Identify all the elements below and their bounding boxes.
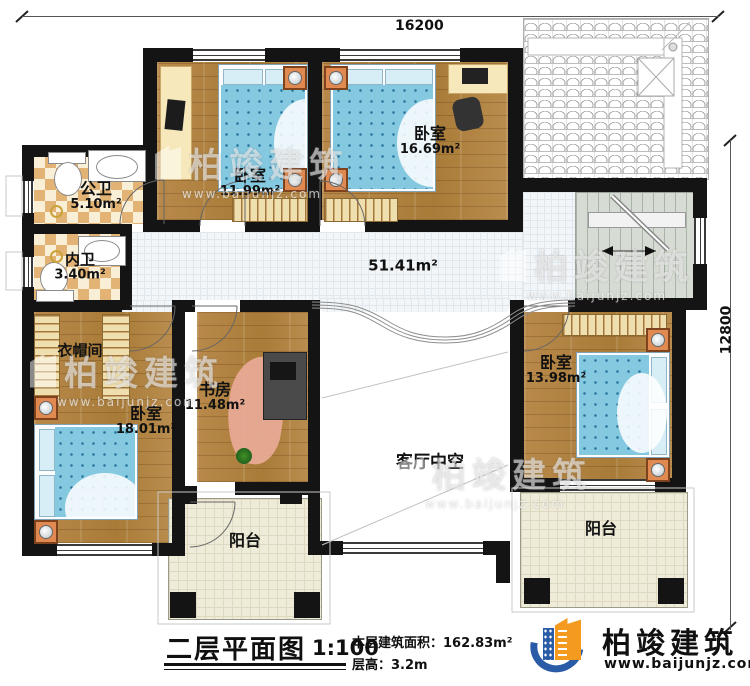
staircase bbox=[575, 192, 695, 300]
wall-segment bbox=[510, 478, 560, 492]
room-label-bedroom-top-left: 卧室 11.99m² bbox=[220, 167, 280, 199]
wall-segment bbox=[265, 48, 340, 62]
plant bbox=[236, 448, 252, 464]
wall-segment bbox=[185, 300, 195, 312]
wall-segment bbox=[22, 543, 57, 556]
wall-segment bbox=[672, 300, 686, 492]
wardrobe bbox=[324, 198, 398, 222]
wardrobe bbox=[34, 314, 60, 400]
wall-segment bbox=[510, 300, 524, 312]
room-label-living-void: 客厅中空 bbox=[396, 453, 464, 472]
wall-segment bbox=[22, 213, 34, 257]
wall-segment bbox=[693, 192, 707, 218]
room-label-cloakroom: 衣帽间 bbox=[57, 343, 102, 360]
room-label-bedroom-top: 卧室 16.69m² bbox=[400, 125, 460, 157]
dimension-line-right bbox=[730, 140, 731, 630]
balcony-pillar bbox=[170, 592, 196, 618]
room-label-hall: 51.41m² bbox=[368, 258, 438, 275]
floor-plan-page: 16200 12800 公卫 5.10m² 内卫 3.40m² 卧室 11.99… bbox=[0, 0, 750, 686]
balcony-pillar bbox=[658, 578, 684, 604]
wall-segment bbox=[22, 224, 130, 234]
floor-area-note: 本层建筑面积：162.83m² bbox=[352, 632, 512, 651]
wall-segment bbox=[143, 220, 200, 232]
brand-url: www.baijunjz.com bbox=[604, 656, 750, 672]
wardrobe bbox=[232, 198, 308, 222]
wall-segment bbox=[152, 543, 185, 556]
nightstand bbox=[646, 458, 670, 482]
window bbox=[340, 49, 460, 61]
dimension-top: 16200 bbox=[395, 18, 444, 34]
logo-building-orange bbox=[555, 618, 581, 660]
window bbox=[343, 542, 483, 554]
dimension-right: 12800 bbox=[718, 306, 734, 355]
nightstand bbox=[283, 168, 307, 192]
wall-segment bbox=[510, 312, 524, 492]
window bbox=[694, 218, 706, 264]
plan-title: 二层平面图 bbox=[166, 629, 306, 666]
floor-living-void bbox=[320, 312, 510, 541]
brand-logo-icon bbox=[528, 612, 596, 680]
room-label-bedroom-right: 卧室 13.98m² bbox=[526, 354, 586, 386]
wall-segment bbox=[22, 312, 34, 556]
window bbox=[193, 49, 265, 61]
room-label-balcony-right: 阳台 bbox=[585, 520, 617, 538]
wall-segment bbox=[568, 300, 686, 312]
nightstand bbox=[34, 396, 58, 420]
wall-segment bbox=[280, 486, 302, 504]
wall-segment bbox=[523, 178, 707, 192]
floor-height-note: 层高：3.2m bbox=[352, 654, 428, 673]
toilet bbox=[36, 290, 74, 302]
floor-hall bbox=[130, 232, 575, 300]
roof-tiles bbox=[523, 18, 709, 180]
nightstand bbox=[283, 66, 307, 90]
balcony-pillar bbox=[524, 578, 550, 604]
wall-segment bbox=[175, 486, 197, 504]
monitor bbox=[270, 362, 296, 380]
window bbox=[560, 479, 655, 491]
towel-ring bbox=[50, 205, 63, 218]
nightstand bbox=[324, 66, 348, 90]
sink bbox=[96, 155, 138, 179]
balcony-pillar bbox=[294, 592, 320, 618]
nightstand bbox=[34, 520, 58, 544]
nightstand bbox=[646, 328, 670, 352]
stair-landing bbox=[588, 212, 686, 228]
room-label-balcony-left: 阳台 bbox=[229, 532, 261, 550]
room-label-inner-bath: 内卫 3.40m² bbox=[54, 251, 105, 282]
dimension-line-top bbox=[22, 16, 719, 17]
nightstand bbox=[324, 168, 348, 192]
floor-hall-by-stairs bbox=[523, 192, 575, 298]
wall-segment bbox=[235, 482, 320, 495]
room-label-study: 书房 11.48m² bbox=[185, 381, 245, 413]
wall-segment bbox=[496, 553, 510, 583]
bed bbox=[34, 424, 138, 520]
wall-segment bbox=[308, 541, 343, 555]
bed bbox=[576, 352, 670, 458]
room-label-public-bath: 公卫 5.10m² bbox=[70, 180, 121, 212]
window bbox=[57, 544, 152, 556]
window bbox=[23, 181, 33, 213]
wall-segment bbox=[22, 157, 34, 181]
logo-building-blue bbox=[543, 628, 554, 660]
tv bbox=[164, 99, 185, 131]
wall-segment bbox=[143, 48, 157, 148]
laptop bbox=[462, 68, 488, 84]
window bbox=[23, 257, 33, 287]
wall-segment bbox=[308, 48, 322, 220]
title-underline-thin bbox=[164, 669, 346, 670]
title-underline bbox=[164, 663, 346, 666]
wardrobe bbox=[102, 314, 130, 400]
room-label-bedroom-left: 卧室 18.01m² bbox=[116, 405, 176, 437]
wall-segment bbox=[508, 48, 523, 232]
wall-segment bbox=[308, 300, 320, 555]
